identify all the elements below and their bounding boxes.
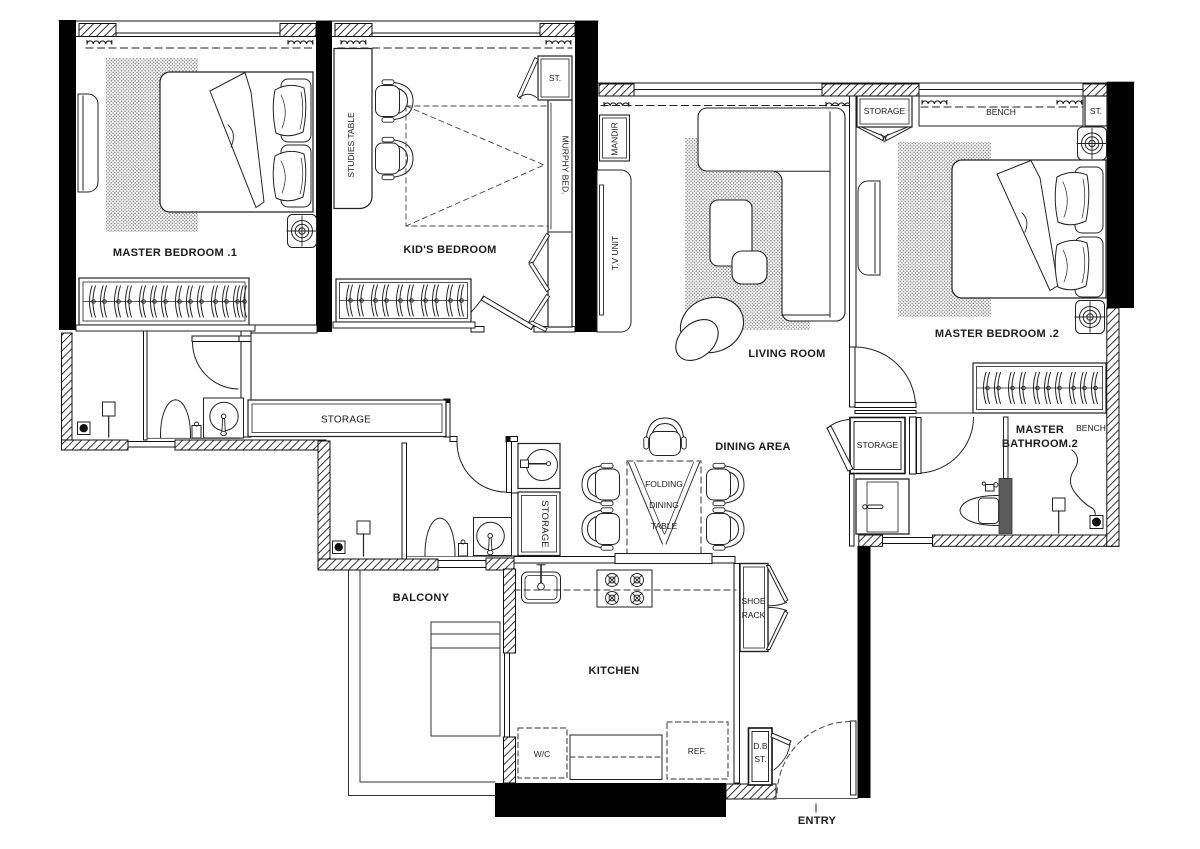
svg-text:BENCH: BENCH <box>1076 423 1106 433</box>
svg-text:MANDIR: MANDIR <box>610 122 620 156</box>
svg-text:D.B: D.B <box>753 741 768 751</box>
svg-text:KITCHEN: KITCHEN <box>589 665 640 677</box>
svg-text:BALCONY: BALCONY <box>393 592 450 604</box>
svg-text:KID'S BEDROOM: KID'S BEDROOM <box>403 244 496 256</box>
svg-text:LIVING ROOM: LIVING ROOM <box>748 348 825 360</box>
svg-text:STORAGE: STORAGE <box>857 440 899 450</box>
svg-text:SHOE: SHOE <box>741 596 765 606</box>
svg-text:DINING: DINING <box>649 500 679 510</box>
svg-text:ST.: ST. <box>1090 106 1102 116</box>
svg-text:W/C: W/C <box>534 749 551 759</box>
svg-text:ST.: ST. <box>549 73 561 83</box>
svg-text:MASTER BEDROOM .2: MASTER BEDROOM .2 <box>935 328 1059 340</box>
svg-text:MASTER BEDROOM .1: MASTER BEDROOM .1 <box>113 247 237 259</box>
svg-text:BENCH: BENCH <box>986 107 1016 117</box>
svg-text:DINING AREA: DINING AREA <box>715 441 791 453</box>
svg-text:REF.: REF. <box>688 746 706 756</box>
svg-text:BATHROOM.2: BATHROOM.2 <box>1002 438 1078 450</box>
svg-text:RACK: RACK <box>742 610 766 620</box>
svg-text:STORAGE: STORAGE <box>321 415 371 426</box>
svg-text:ST.: ST. <box>754 754 766 764</box>
svg-text:TABLE: TABLE <box>651 521 678 531</box>
svg-text:T.V UNIT: T.V UNIT <box>610 236 620 270</box>
svg-text:FOLDING: FOLDING <box>645 479 683 489</box>
svg-text:ENTRY: ENTRY <box>798 815 837 827</box>
svg-text:STUDIES TABLE: STUDIES TABLE <box>346 112 356 178</box>
svg-text:STORAGE: STORAGE <box>539 500 550 548</box>
svg-text:MASTER: MASTER <box>1016 424 1064 436</box>
svg-text:MURPHY BED.: MURPHY BED. <box>561 136 571 195</box>
svg-text:STORAGE: STORAGE <box>864 106 906 116</box>
